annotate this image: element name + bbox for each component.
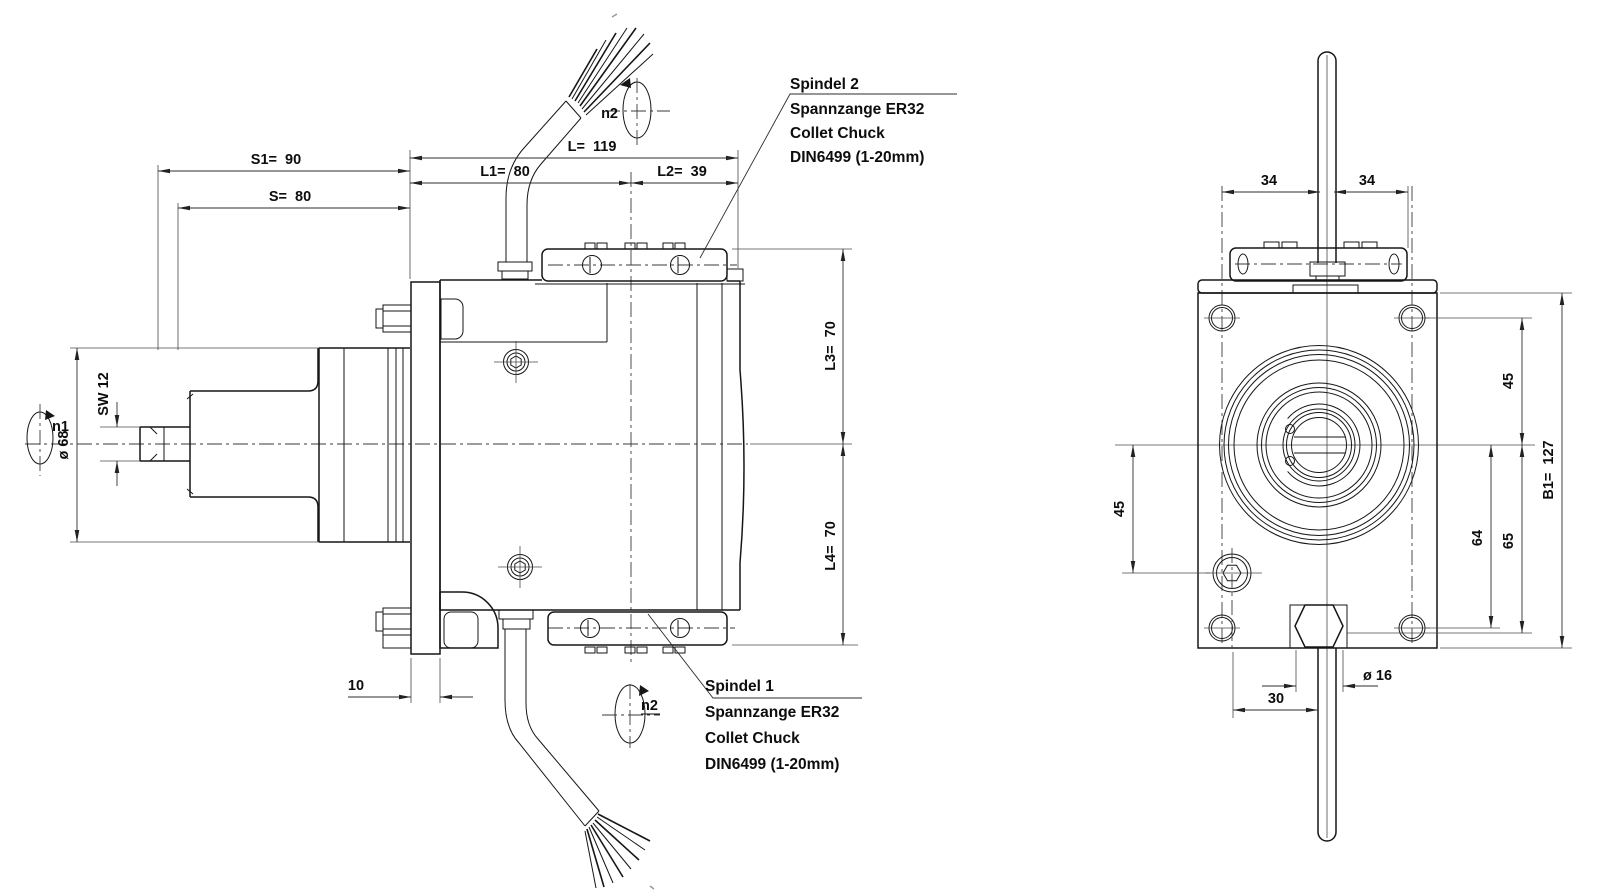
body-screw-bottom bbox=[498, 546, 542, 588]
mounting-plate bbox=[411, 282, 440, 654]
clamp-screw-bottom bbox=[376, 608, 411, 648]
callout-spindle1-line3: Collet Chuck bbox=[705, 730, 800, 747]
center-lines bbox=[25, 172, 748, 662]
front-center-lines bbox=[1115, 55, 1535, 838]
socket-screw-front bbox=[1205, 548, 1262, 652]
rotation-symbol-n2-bottom: n2 bbox=[602, 684, 660, 748]
dim-b1-label: B1= 127 bbox=[1541, 440, 1557, 499]
dim-45-right: 45 bbox=[1425, 318, 1532, 445]
body-screw-top bbox=[494, 341, 538, 383]
wire-fan-bottom bbox=[585, 814, 654, 889]
front-body bbox=[1198, 280, 1437, 648]
dim-l3-label: L3= 70 bbox=[823, 321, 839, 371]
dim-34-right: 34 bbox=[1334, 173, 1408, 248]
bottom-hex bbox=[1290, 605, 1347, 648]
callout-spindle2-line3: Collet Chuck bbox=[790, 125, 885, 142]
dim-l1-80: L1= 80 bbox=[410, 164, 631, 183]
dim-l2-39: L2= 39 bbox=[631, 164, 738, 183]
callout-spindle2-line2: Spannzange ER32 bbox=[790, 101, 924, 118]
collet-chuck-side bbox=[140, 348, 410, 542]
dim-l1-label: L1= 80 bbox=[480, 164, 530, 180]
dim-dia16-label: ø 16 bbox=[1363, 668, 1392, 684]
dim-l3-70: L3= 70 bbox=[732, 249, 852, 444]
front-view: 34 34 45 65 64 B1= 127 bbox=[1112, 52, 1572, 841]
cross-bar bbox=[1310, 52, 1345, 841]
dim-34-right-label: 34 bbox=[1359, 173, 1375, 189]
callout-spindle1-line2: Spannzange ER32 bbox=[705, 704, 839, 721]
side-view: n1 n2 n2 S1= 90 S= 80 bbox=[25, 14, 957, 889]
spindle1-plate bbox=[548, 612, 727, 653]
spindle2-plate bbox=[542, 243, 727, 281]
gearbox-body bbox=[440, 269, 745, 648]
dim-45-left: 45 bbox=[1112, 445, 1210, 573]
dim-b1-127: B1= 127 bbox=[1440, 293, 1572, 648]
rotation-symbol-n2-top: n2 bbox=[601, 78, 670, 145]
dim-30-label: 30 bbox=[1268, 691, 1284, 707]
dim-sw12: SW 12 bbox=[96, 372, 140, 486]
callout-spindle1-line4: DIN6499 (1-20mm) bbox=[705, 756, 839, 773]
dim-10: 10 bbox=[348, 658, 473, 703]
technical-drawing: n1 n2 n2 S1= 90 S= 80 bbox=[0, 0, 1600, 896]
drawing-page: n1 n2 n2 S1= 90 S= 80 bbox=[0, 0, 1600, 896]
dim-10-label: 10 bbox=[348, 678, 364, 694]
callout-spindle2-title: Spindel 2 bbox=[790, 76, 859, 93]
dim-45-right-label: 45 bbox=[1501, 373, 1517, 389]
clamp-screw-top bbox=[376, 305, 411, 332]
dim-sw12-label: SW 12 bbox=[96, 372, 112, 416]
dim-l-119: L= 119 bbox=[410, 139, 738, 279]
dim-s-80: S= 80 bbox=[178, 189, 410, 350]
dim-l-label: L= 119 bbox=[568, 139, 617, 155]
dim-s-label: S= 80 bbox=[269, 189, 311, 205]
callout-spindle2-line4: DIN6499 (1-20mm) bbox=[790, 149, 924, 166]
label-n2-bottom: n2 bbox=[641, 698, 658, 714]
dim-s1-90: S1= 90 bbox=[158, 152, 410, 350]
dim-dia68-label: ø 68 bbox=[56, 430, 72, 459]
dim-l4-label: L4= 70 bbox=[823, 521, 839, 571]
dim-l2-label: L2= 39 bbox=[657, 164, 707, 180]
dim-34-left-label: 34 bbox=[1261, 173, 1277, 189]
dim-30: 30 bbox=[1233, 652, 1318, 718]
dim-64-label: 64 bbox=[1470, 530, 1486, 546]
dim-65-label: 65 bbox=[1501, 533, 1517, 549]
dim-l4-70: L4= 70 bbox=[732, 444, 858, 645]
callout-spindle2: Spindel 2 Spannzange ER32 Collet Chuck D… bbox=[700, 76, 957, 258]
label-n2-top: n2 bbox=[601, 106, 618, 122]
dim-45-left-label: 45 bbox=[1112, 501, 1128, 517]
dim-34-left: 34 bbox=[1222, 173, 1320, 192]
callout-spindle1-title: Spindel 1 bbox=[705, 678, 774, 695]
wire-fan-top bbox=[569, 14, 653, 115]
dim-s1-label: S1= 90 bbox=[251, 152, 301, 168]
